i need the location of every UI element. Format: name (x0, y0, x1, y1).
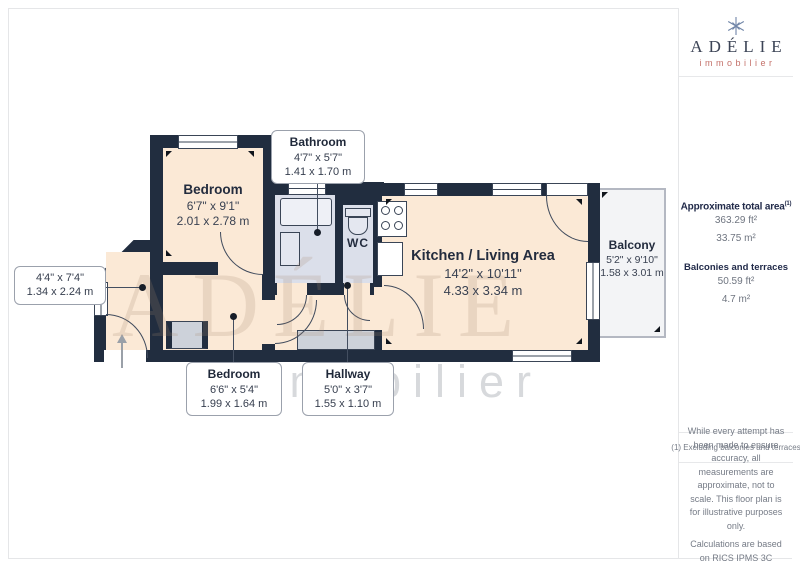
snowflake-icon (726, 16, 746, 36)
corner-tick (654, 326, 660, 332)
corner-tick (166, 151, 172, 157)
room-label-wc: WC (336, 236, 380, 252)
room-dims-metric: 1.34 x 2.24 m (22, 285, 98, 299)
total-area-heading: Approximate total area(1) (681, 201, 792, 212)
floorplan-page: ADÉLIE immobilier Bedroom 6'7" x 9'1" 2.… (0, 0, 800, 566)
brand-logo: ADÉLIE immobilier (679, 8, 793, 77)
room-dims-imperial: 6'7" x 9'1" (151, 199, 275, 215)
corner-tick (576, 199, 582, 205)
room-name: Bedroom (151, 181, 275, 199)
room-label-bedroom-top: Bedroom 6'7" x 9'1" 2.01 x 2.78 m (151, 181, 275, 230)
room-label-kitchen: Kitchen / Living Area 14'2" x 10'11" 4.3… (385, 247, 581, 300)
room-name: Bathroom (279, 135, 357, 151)
leader-line (317, 181, 318, 233)
leader-line (233, 317, 234, 363)
room-dims-imperial: 4'7" x 5'7" (279, 151, 357, 165)
room-label-balcony: Balcony 5'2" x 9'10" 1.58 x 3.01 m (594, 238, 670, 281)
leader-dot (344, 282, 351, 289)
room-dims-metric: 1.41 x 1.70 m (279, 165, 357, 179)
room-dims-imperial: 5'0" x 3'7" (310, 383, 386, 397)
toilet-bowl (348, 217, 368, 235)
room-dims-metric: 1.99 x 1.64 m (194, 397, 274, 411)
info-sidebar: ADÉLIE immobilier Approximate total area… (678, 8, 793, 558)
total-area-m: 33.75 m² (716, 230, 755, 248)
leader-line (347, 286, 348, 363)
room-dims-metric: 1.58 x 3.01 m (594, 267, 670, 281)
corner-tick (576, 338, 582, 344)
label-box-hallway: Hallway 5'0" x 3'7" 1.55 x 1.10 m (302, 362, 394, 416)
stove (377, 201, 407, 237)
balcony-area-heading: Balconies and terraces (684, 262, 788, 273)
area-summary: Approximate total area(1) 363.29 ft² 33.… (679, 77, 793, 433)
total-area-footnote-ref: (1) (785, 201, 792, 207)
balcony-area-m: 4.7 m² (722, 291, 750, 309)
total-area-ft: 363.29 ft² (715, 212, 757, 230)
window (404, 183, 438, 196)
room-dims-metric: 4.33 x 3.34 m (385, 283, 581, 300)
corner-tick (602, 192, 608, 198)
leader-dot (314, 229, 321, 236)
room-dims-imperial: 6'6" x 5'4" (194, 383, 274, 397)
balcony-area-ft: 50.59 ft² (718, 273, 755, 291)
bathtub (280, 198, 332, 226)
room-dims-imperial: 4'4" x 7'4" (22, 271, 98, 285)
total-area-label: Approximate total area (681, 201, 785, 212)
brand-name: ADÉLIE (690, 37, 787, 57)
toilet-tank (345, 208, 371, 217)
room-dims-metric: 2.01 x 2.78 m (151, 214, 275, 230)
balcony-door-opening (546, 183, 588, 196)
disclaimer-paragraph: While every attempt has been made to ens… (679, 425, 793, 533)
window (178, 135, 238, 149)
disclaimer-paragraph: Calculations are based on RICS IPMS 3C s… (679, 538, 793, 566)
room-dims-imperial: 14'2" x 10'11" (385, 266, 581, 283)
brand-tagline: immobilier (699, 58, 775, 68)
leader-dot (139, 284, 146, 291)
room-dims-imperial: 5'2" x 9'10" (594, 254, 670, 268)
leader-dot (230, 313, 237, 320)
window (492, 183, 542, 196)
room-name: Hallway (310, 367, 386, 383)
room-dims-metric: 1.55 x 1.10 m (310, 397, 386, 411)
label-box-bedroom-bottom: Bedroom 6'6" x 5'4" 1.99 x 1.64 m (186, 362, 282, 416)
room-name: Kitchen / Living Area (385, 247, 581, 266)
room-name: Balcony (594, 238, 670, 254)
corner-tick (386, 199, 392, 205)
room-name: Bedroom (194, 367, 274, 383)
label-box-hall-nook: 4'4" x 7'4" 1.34 x 2.24 m (14, 266, 106, 305)
label-box-bathroom: Bathroom 4'7" x 5'7" 1.41 x 1.70 m (271, 130, 365, 184)
corner-tick (248, 151, 254, 157)
disclaimer-section: While every attempt has been made to ens… (679, 463, 793, 557)
room-name: WC (336, 236, 380, 252)
